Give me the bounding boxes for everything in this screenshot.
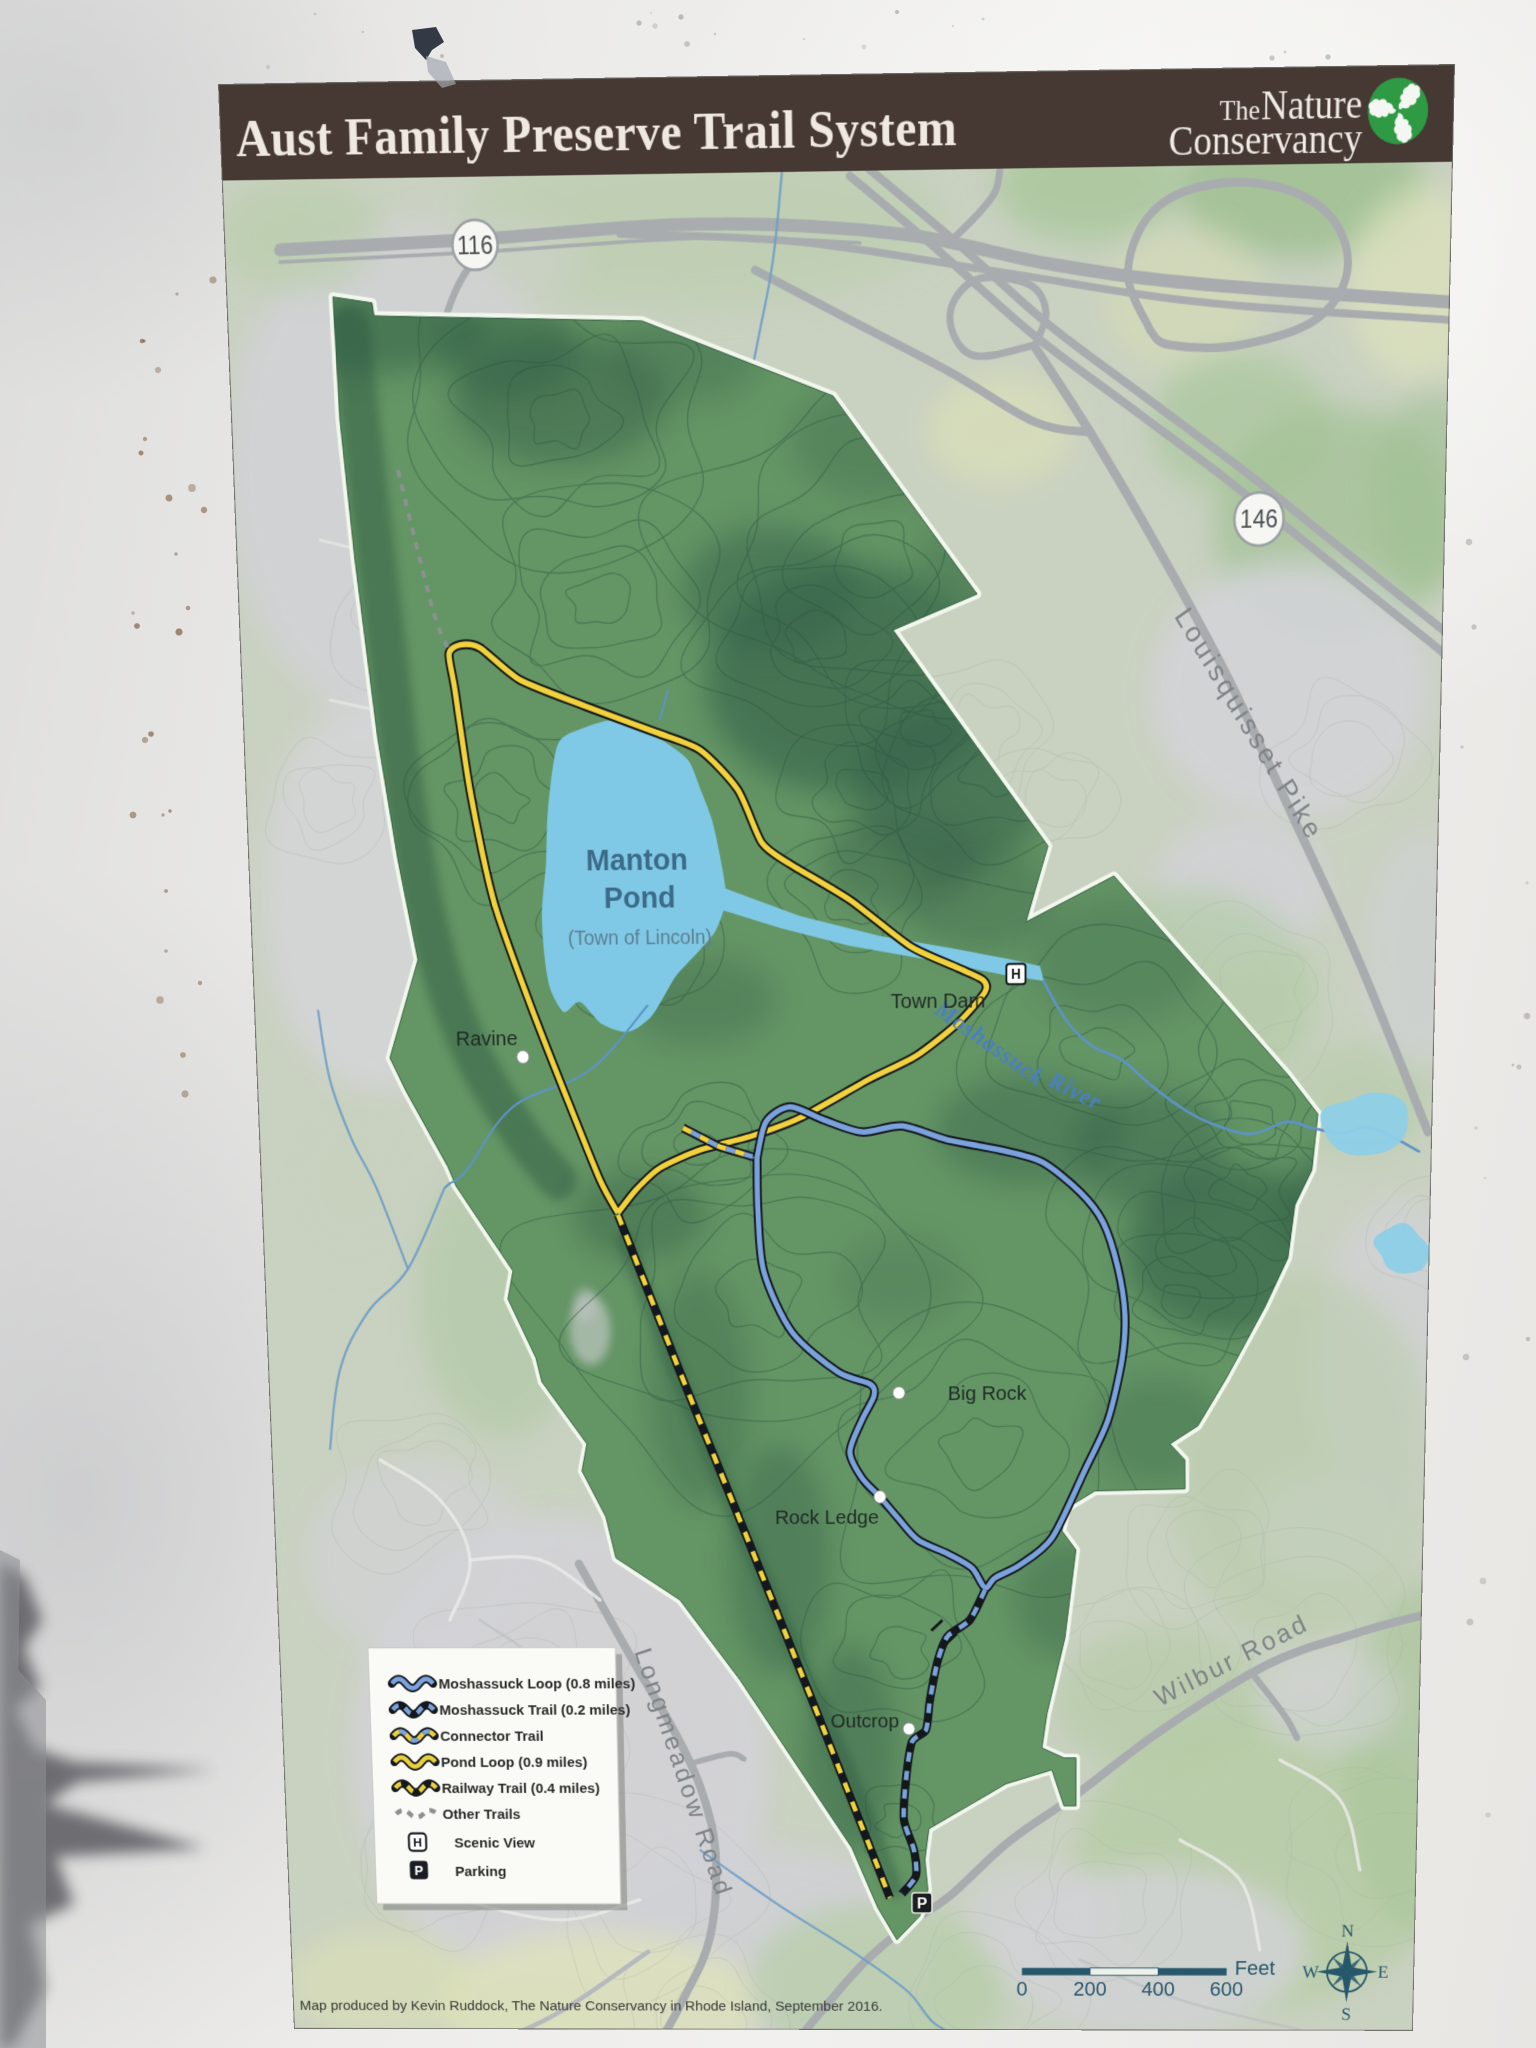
svg-text:Parking: Parking <box>455 1863 507 1879</box>
svg-text:Pond: Pond <box>604 880 676 915</box>
svg-text:Moshassuck Loop (0.8 miles): Moshassuck Loop (0.8 miles) <box>438 1675 635 1691</box>
svg-text:146: 146 <box>1240 506 1278 534</box>
svg-text:Map produced by Kevin Ruddock,: Map produced by Kevin Ruddock, The Natur… <box>299 1998 882 2014</box>
svg-text:Manton: Manton <box>586 842 689 877</box>
svg-text:Railway Trail (0.4 miles): Railway Trail (0.4 miles) <box>441 1780 599 1796</box>
svg-text:Other Trails: Other Trails <box>442 1806 521 1822</box>
svg-text:Ravine: Ravine <box>456 1027 518 1051</box>
svg-text:E: E <box>1378 1963 1389 1982</box>
svg-text:P: P <box>414 1863 423 1878</box>
svg-text:Moshassuck Trail (0.2 miles): Moshassuck Trail (0.2 miles) <box>439 1702 630 1718</box>
svg-text:Connector Trail: Connector Trail <box>440 1728 544 1744</box>
svg-text:116: 116 <box>457 232 494 261</box>
svg-text:600: 600 <box>1210 1977 1244 2000</box>
svg-text:(Town of Lincoln): (Town of Lincoln) <box>568 926 712 949</box>
svg-text:Town Dam: Town Dam <box>891 988 986 1013</box>
svg-text:Pond Loop (0.9 miles): Pond Loop (0.9 miles) <box>441 1754 588 1770</box>
svg-text:S: S <box>1341 2005 1351 2024</box>
svg-text:H: H <box>1011 967 1021 983</box>
svg-text:Feet: Feet <box>1235 1956 1276 1979</box>
svg-text:400: 400 <box>1141 1977 1175 2000</box>
svg-text:W: W <box>1302 1963 1319 1982</box>
svg-text:200: 200 <box>1073 1977 1106 2000</box>
svg-text:Aust Family Preserve Trail Sys: Aust Family Preserve Trail System <box>235 98 958 168</box>
svg-text:Conservancy: Conservancy <box>1169 116 1364 164</box>
svg-text:Rock Ledge: Rock Ledge <box>775 1505 879 1528</box>
svg-text:Big Rock: Big Rock <box>948 1381 1028 1405</box>
svg-text:Outcrop: Outcrop <box>830 1710 899 1732</box>
svg-text:0: 0 <box>1016 1977 1027 2000</box>
svg-text:Scenic View: Scenic View <box>454 1835 536 1851</box>
svg-text:N: N <box>1341 1922 1354 1941</box>
svg-text:H: H <box>413 1835 422 1849</box>
svg-text:P: P <box>917 1894 928 1912</box>
